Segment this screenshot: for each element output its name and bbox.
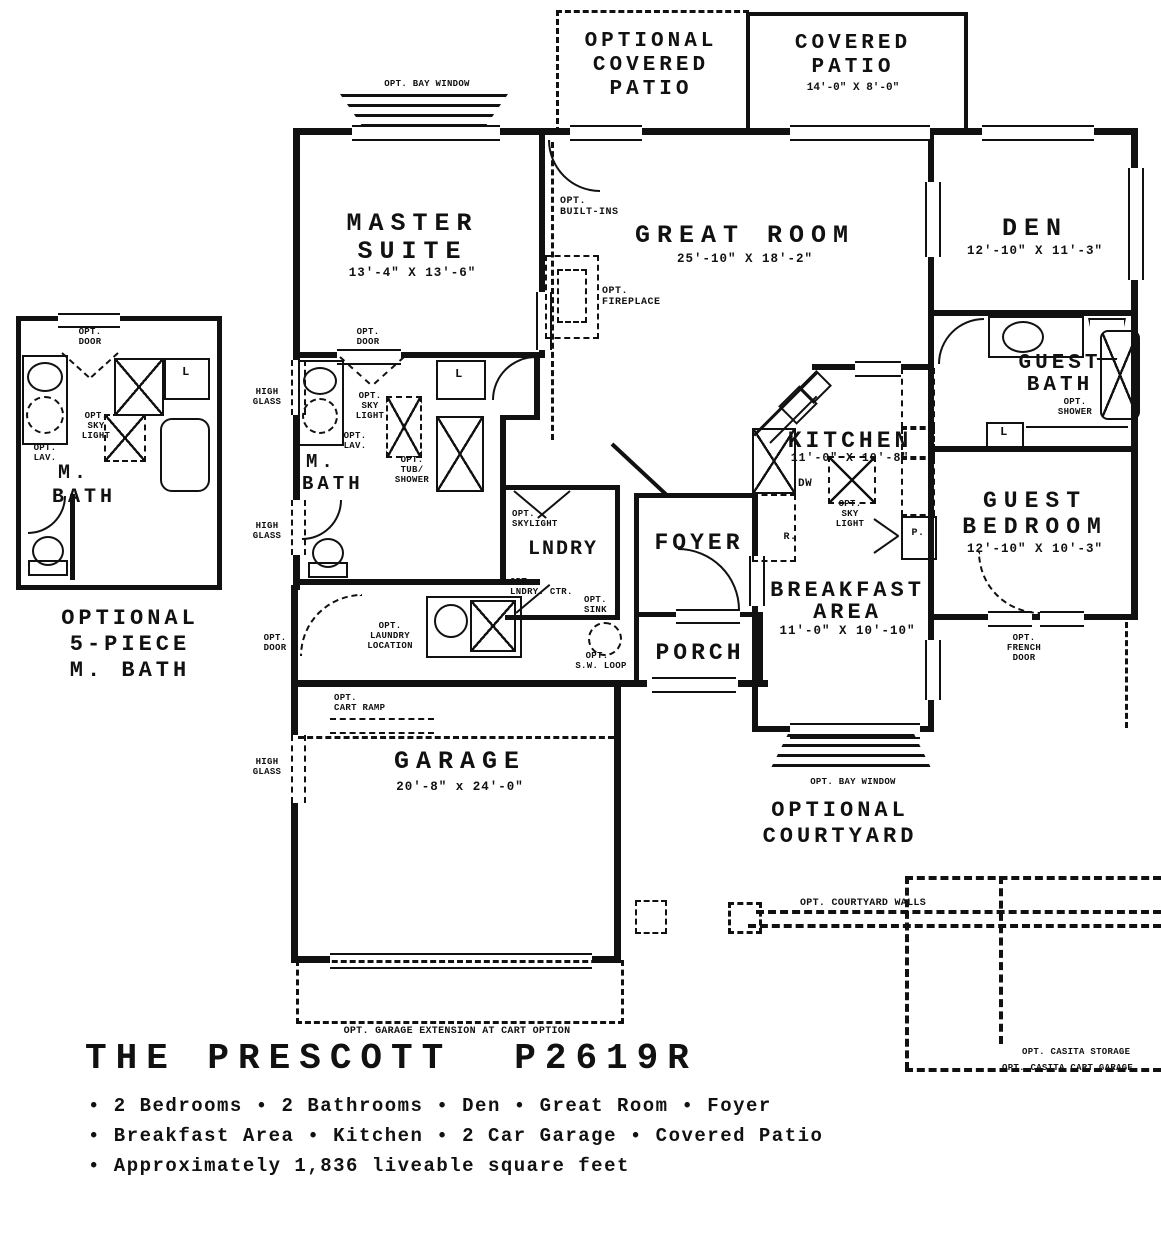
- opening-front-door: [676, 609, 740, 624]
- opt-cart-ramp-label-2: CART RAMP: [334, 704, 424, 714]
- mbath-skylight-label-3: LIGHT: [350, 412, 390, 422]
- courtyard-right-dash: [1125, 622, 1128, 728]
- optbath-skylight-box: [104, 414, 146, 462]
- opt-fireplace-box-inner: [557, 269, 587, 323]
- kitchen-shelf-1: [901, 368, 935, 428]
- guestbed-opt-door-arc: [978, 552, 1040, 614]
- opening-porch-front: [652, 677, 736, 693]
- laundry-washer: [434, 604, 468, 638]
- window-breakfast-right: [925, 640, 941, 700]
- opt-bay-window-top-label: OPT. BAY WINDOW: [352, 80, 502, 90]
- feature-line-2: • Breakfast Area • Kitchen • 2 Car Garag…: [88, 1126, 988, 1148]
- mbath-tub-shower: [436, 416, 484, 492]
- garage-extension-line: [298, 736, 614, 739]
- kitchen-p-label: P.: [908, 528, 928, 539]
- optional-courtyard-label-1: OPTIONAL: [750, 798, 930, 823]
- breakfast-dims: 11'-0" X 10'-10": [765, 624, 930, 638]
- laundry-dryer: [470, 600, 516, 652]
- opt-casita-cart-label: OPT. CASITA CART GARAGE: [1002, 1064, 1161, 1074]
- wall-lndry-top: [505, 485, 620, 490]
- master-suite-label-2: SUITE: [300, 238, 525, 267]
- opt-fireplace-label-2: FIREPLACE: [602, 297, 682, 308]
- plan-title: THE PRESCOTTP2619R: [85, 1038, 785, 1079]
- wall-foyer-top: [634, 493, 758, 498]
- opt-built-ins-label-2: BUILT-INS: [560, 207, 640, 218]
- small-dash-box: [635, 900, 667, 934]
- guest-bedroom-label-2: BEDROOM: [937, 514, 1133, 540]
- plan-name: THE PRESCOTT: [85, 1038, 452, 1079]
- opt-tub-shower-label-3: SHOWER: [388, 476, 436, 486]
- covered-patio-dims: 14'-0" X 8'-0": [773, 82, 933, 95]
- guestbed-linen-label: L: [994, 426, 1014, 439]
- kitchen-dw-label: DW: [798, 478, 828, 490]
- plan-model: P2619R: [514, 1038, 698, 1079]
- lndry-skylight-label-2: SKYLIGHT: [512, 520, 582, 530]
- breakfast-label-2: AREA: [765, 600, 930, 625]
- opening-breakfast-door: [749, 556, 765, 606]
- opt-shower-label-2: SHOWER: [1044, 408, 1106, 418]
- kitchen-skylight: [828, 456, 876, 504]
- opt-fireplace-label-1: OPT.: [602, 286, 642, 297]
- courtyard-wall-left-box: [728, 902, 762, 934]
- window-guestbed-bottom-2: [1040, 611, 1084, 627]
- sw-loop-label-2: S.W. LOOP: [566, 662, 636, 672]
- opening-kitchen-pass: [855, 361, 901, 377]
- kitchen-r-label: R.: [780, 532, 800, 543]
- lndry-bifold-r: [537, 490, 570, 519]
- mbath-label-1: M.: [306, 452, 366, 474]
- optional-courtyard-label-2: COURTYARD: [738, 824, 942, 849]
- guestbath-door-arc: [938, 318, 984, 364]
- optbath-toilet-opt: [26, 396, 64, 434]
- opt-casita-storage-label: OPT. CASITA STORAGE: [1022, 1048, 1161, 1058]
- high-glass-window-3: [291, 735, 306, 803]
- foyer-door-arc: [678, 548, 740, 610]
- window-master-bay: [352, 125, 500, 141]
- guestbed-closet: [1026, 426, 1128, 450]
- mbath-skylight-box: [386, 396, 422, 458]
- opt-courtyard-walls-label: OPT. COURTYARD WALLS: [778, 898, 948, 909]
- opt-bay-window-bottom-label: OPT. BAY WINDOW: [778, 778, 928, 788]
- wall-mbath-connector: [500, 415, 540, 420]
- feature-line-1: • 2 Bedrooms • 2 Bathrooms • Den • Great…: [88, 1096, 988, 1118]
- master-suite-dims: 13'-4" X 13'-6": [300, 266, 525, 280]
- wall-corridor-bottom: [291, 680, 621, 687]
- optional-5pc-label-2: 5-PIECE: [40, 632, 220, 657]
- master-suite-label-1: MASTER: [300, 210, 525, 239]
- optbath-door-gap: [58, 313, 120, 328]
- bay-window-top: [340, 94, 508, 128]
- mbath-opt-door-label-2: DOOR: [348, 338, 388, 348]
- mbath-toilet-opt: [302, 398, 338, 434]
- great-room-label: GREAT ROOM: [610, 222, 880, 251]
- optional-covered-patio-label-2: COVERED: [571, 54, 731, 78]
- feature-line-3: • Approximately 1,836 liveable square fe…: [88, 1156, 988, 1178]
- mbath-opt-lav-label-2: LAV.: [338, 442, 372, 452]
- mbath-sink: [303, 367, 337, 395]
- kitchen-fridge: [752, 494, 796, 562]
- covered-patio-label-2: PATIO: [773, 56, 933, 80]
- kitchen-shelf-2: [901, 428, 935, 458]
- guestbath-sink: [1002, 321, 1044, 353]
- pantry-door-a: [873, 518, 899, 537]
- optbath-linen-label: L: [176, 366, 196, 379]
- kitchen-skylight-label-3: LIGHT: [828, 520, 872, 530]
- optional-covered-patio-label-3: PATIO: [571, 78, 731, 102]
- mbath-hall-door-arc: [492, 356, 536, 400]
- covered-patio-label-1: COVERED: [773, 32, 933, 56]
- wall-guestbed-bottom: [931, 614, 1138, 620]
- mbath-label-2: BATH: [302, 474, 392, 496]
- high-glass-label-2b: GLASS: [246, 532, 288, 542]
- den-label: DEN: [945, 215, 1125, 244]
- optbath-mbath-label-1: M.: [58, 462, 118, 485]
- porch-label: PORCH: [640, 640, 760, 666]
- kitchen-shelf-3: [901, 458, 935, 516]
- opt-french-door-label-3: DOOR: [1002, 654, 1046, 664]
- opt-garage-ext-label: OPT. GARAGE EXTENSION AT CART OPTION: [296, 1026, 618, 1037]
- opt-laundry-label-3: LOCATION: [352, 642, 428, 652]
- optional-5pc-label-3: M. BATH: [40, 658, 220, 683]
- den-dims: 12'-10" X 11'-3": [945, 244, 1125, 258]
- optbath-lav-label-2: LAV.: [28, 454, 62, 464]
- optbath-mbath-label-2: BATH: [52, 486, 152, 509]
- high-glass-label-3b: GLASS: [246, 768, 288, 778]
- window-den-right: [1128, 168, 1144, 280]
- wall-foyer-left: [634, 493, 639, 617]
- lndry-opt-sink-label-2: SINK: [584, 606, 618, 616]
- window-den-top: [982, 125, 1094, 141]
- garage-label: GARAGE: [340, 748, 580, 777]
- guest-bedroom-label-1: GUEST: [945, 488, 1125, 514]
- guestbath-tub: [1100, 330, 1140, 420]
- casita-left: [905, 876, 909, 1070]
- wall-mbath-top: [293, 352, 545, 358]
- mbath-door-arc: [302, 500, 342, 540]
- garage-ext-box: [296, 960, 624, 1024]
- opening-great-den: [925, 182, 941, 257]
- great-room-dims: 25'-10" X 18'-2": [610, 252, 880, 266]
- wall-garage-right: [614, 684, 621, 963]
- garage-dims: 20'-8" x 24'-0": [340, 780, 580, 794]
- courtyard-wall-line-1: [756, 910, 1161, 914]
- optional-covered-patio-label-1: OPTIONAL: [571, 30, 731, 54]
- casita-mid: [999, 876, 1003, 1044]
- optional-5pc-label-1: OPTIONAL: [40, 606, 220, 631]
- optbath-inner-wall: [70, 494, 75, 580]
- opt-built-ins-label-1: OPT.: [560, 196, 630, 207]
- kitchen-range: [752, 428, 796, 494]
- mbath-toilet-tank: [308, 562, 348, 578]
- optbath-tub: [160, 418, 210, 492]
- bay-window-bottom: [768, 734, 934, 774]
- courtyard-wall-line-2: [748, 924, 1161, 928]
- mbath-linen-label: L: [448, 368, 470, 381]
- window-greatroom-patio-l: [570, 125, 642, 141]
- optbath-shower: [114, 358, 164, 416]
- casita-top: [905, 876, 1161, 880]
- pantry-door-b: [873, 535, 899, 554]
- wall-mbath-right-b: [500, 415, 506, 585]
- high-glass-label-1b: GLASS: [246, 398, 288, 408]
- cart-ramp-steps: [330, 718, 434, 734]
- floor-plan-sheet: OPTIONAL COVERED PATIO COVERED PATIO 14'…: [0, 0, 1161, 1255]
- optbath-sink: [27, 362, 63, 392]
- garage-opt-door-label-2: DOOR: [256, 644, 294, 654]
- optbath-toilet-tank: [28, 560, 68, 576]
- window-greatroom-patio-r: [790, 125, 930, 141]
- window-guestbed-bottom-1: [988, 611, 1032, 627]
- wall-porch-left: [634, 612, 639, 687]
- greatroom-door-arc: [548, 140, 600, 192]
- lndry-label: LNDRY: [508, 538, 618, 561]
- optbath-opt-door-label-2: DOOR: [70, 338, 110, 348]
